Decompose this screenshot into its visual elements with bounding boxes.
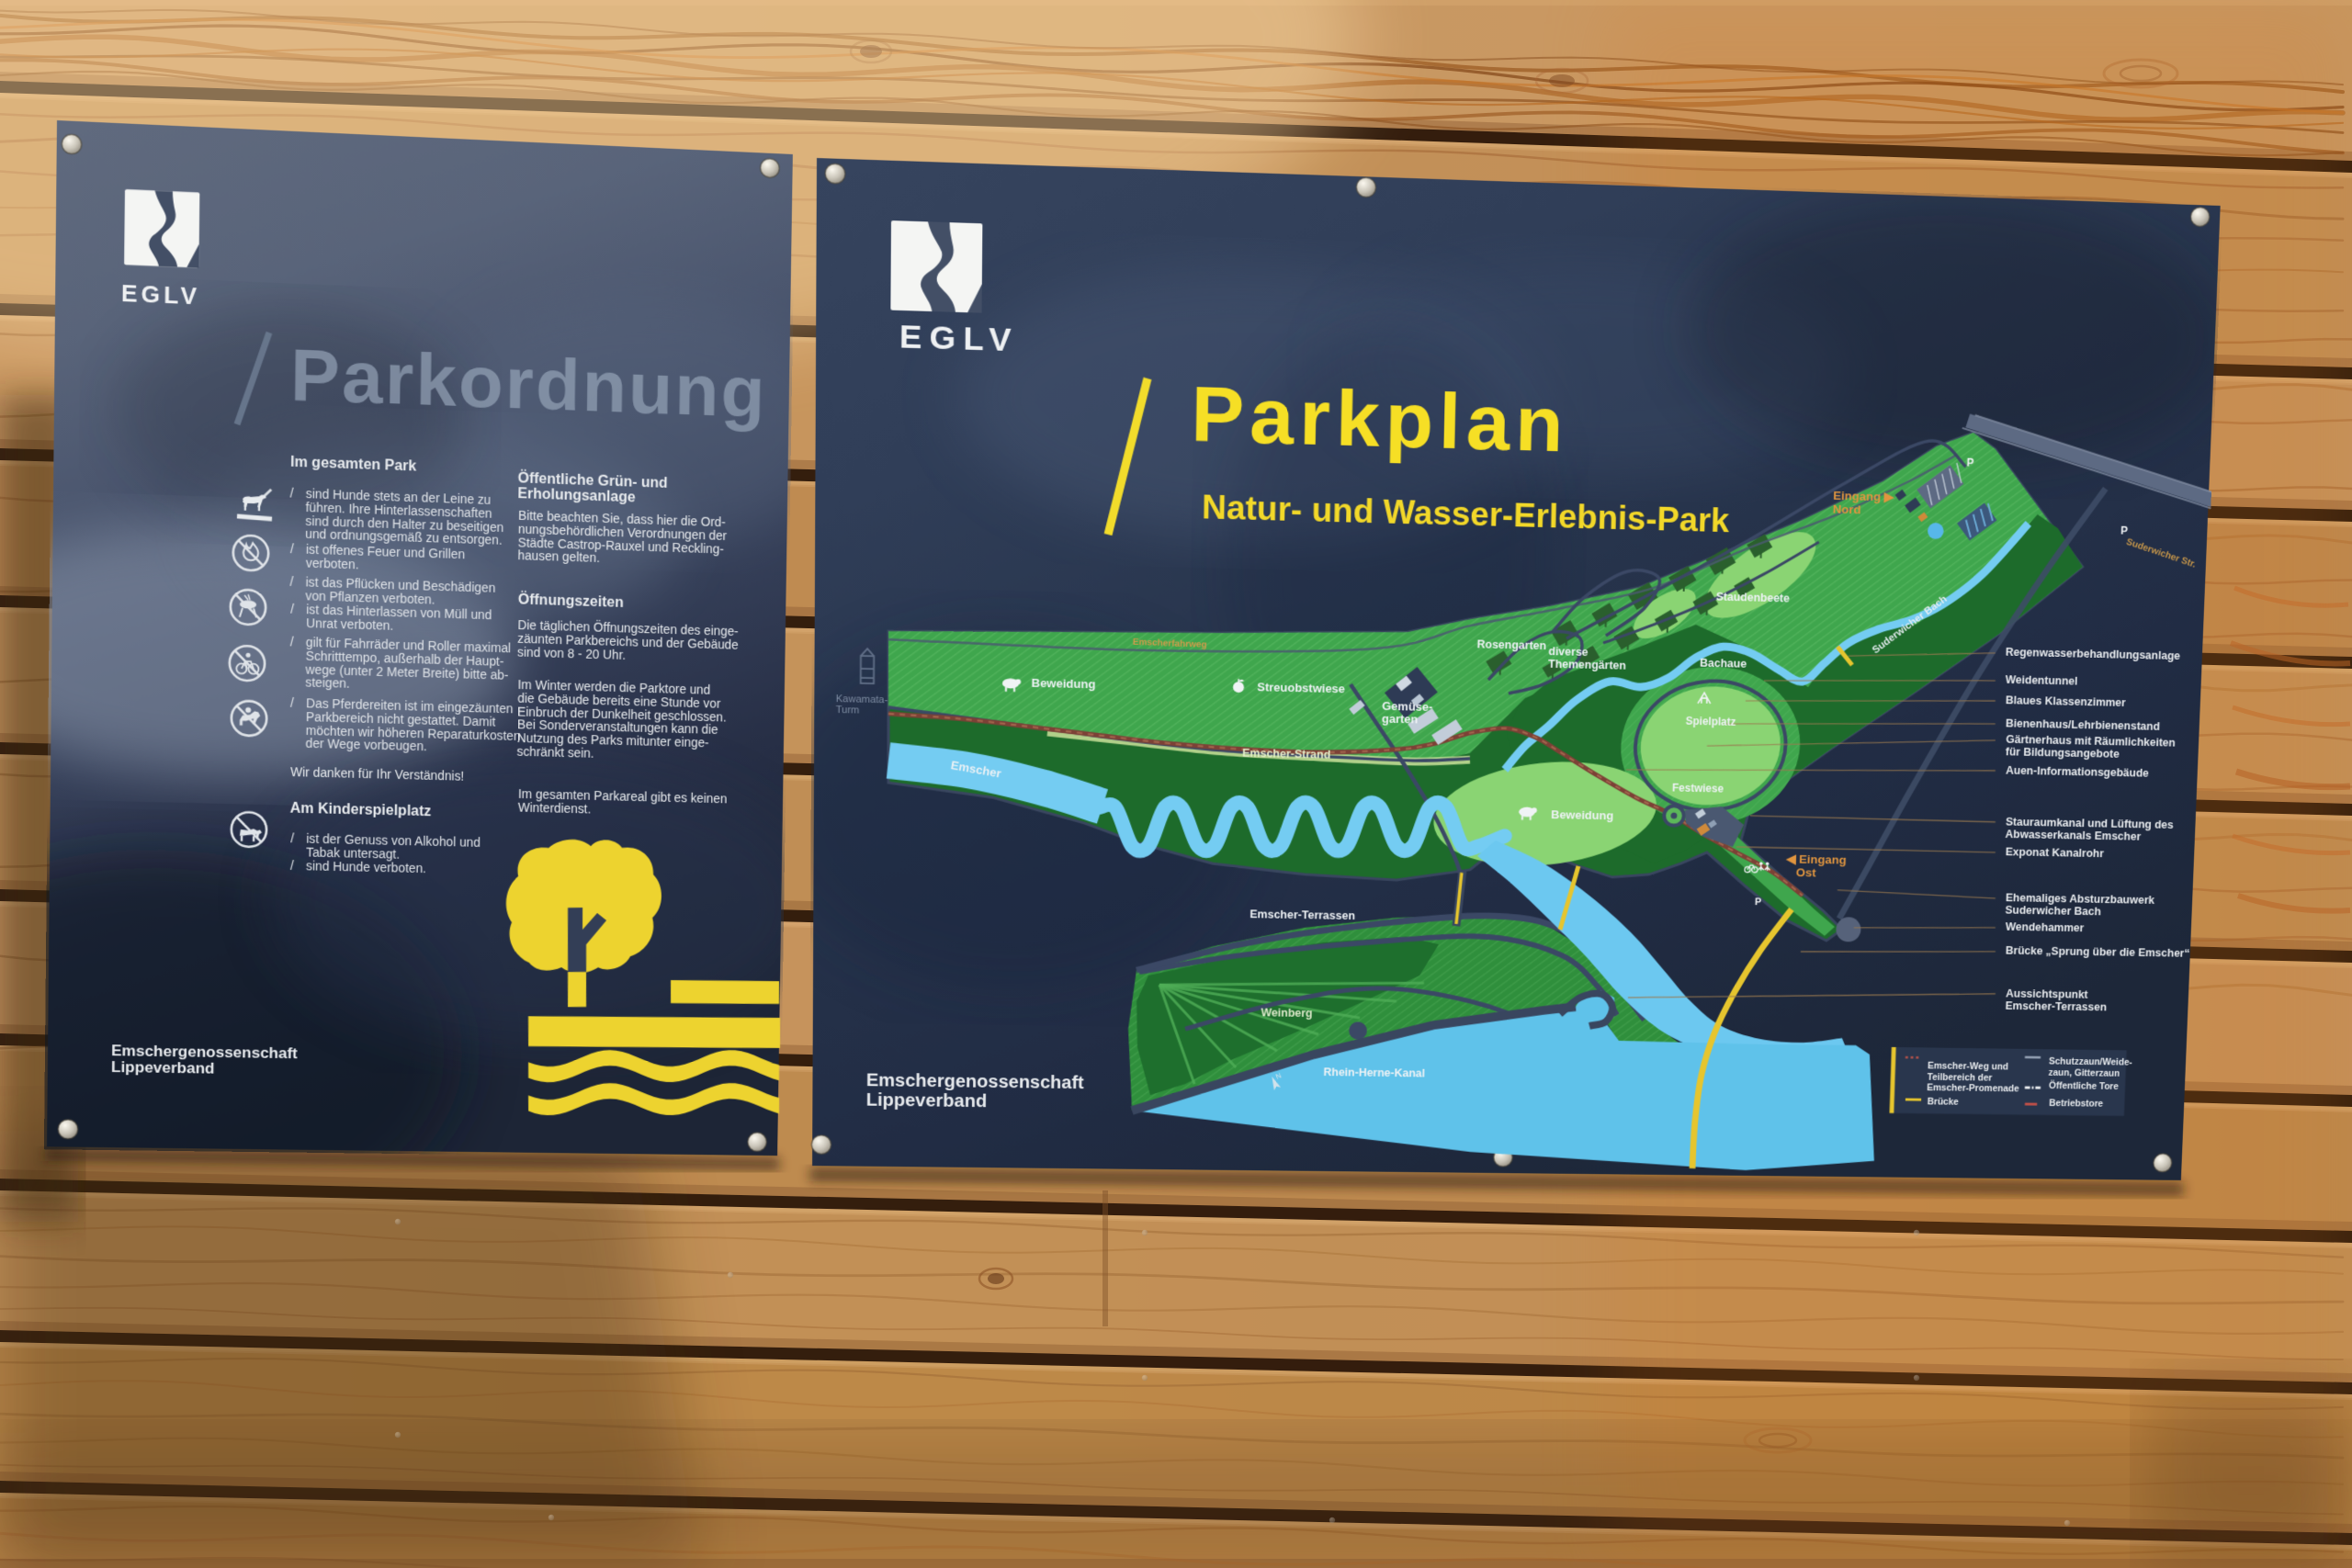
- svg-text:EGLV: EGLV: [121, 279, 201, 310]
- svg-text:EGLV: EGLV: [899, 317, 1019, 358]
